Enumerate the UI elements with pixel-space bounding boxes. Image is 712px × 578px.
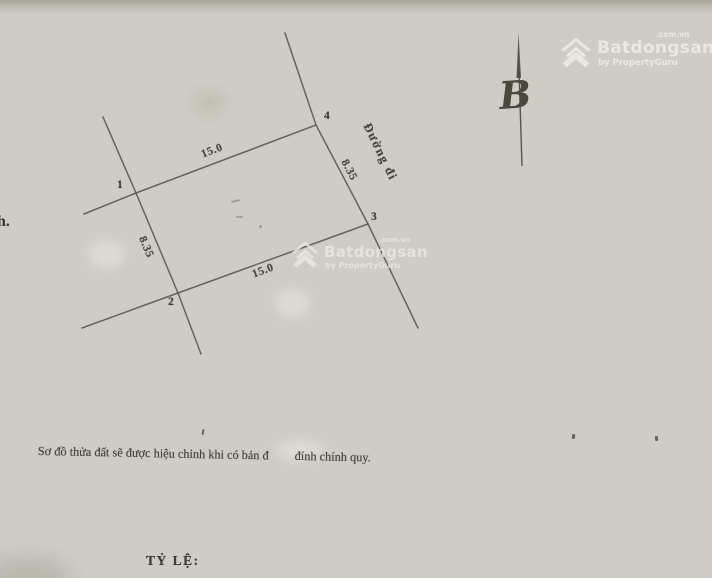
compass-north-letter: B <box>498 75 533 115</box>
footer-note-after: đính chính quy. <box>295 449 371 464</box>
corner-label-2: 2 <box>168 296 174 308</box>
watermark-brand: Batdongsan <box>324 245 428 260</box>
west-boundary-line <box>103 117 201 354</box>
watermark-byline: by PropertyGuru <box>598 59 678 68</box>
batdongsan-logo-icon <box>558 35 594 71</box>
watermark-top-right: .com.vn Batdongsan by PropertyGuru <box>556 28 706 76</box>
corner-label-4: 4 <box>324 110 330 122</box>
batdongsan-logo-icon <box>289 239 321 271</box>
plot-linework <box>0 0 712 578</box>
scanned-land-plot-photo: 1 2 3 4 15.0 15.0 8.35 8.35 Đường đi B h… <box>0 0 712 578</box>
margin-note: h. <box>0 213 10 231</box>
north-edge-line <box>84 125 316 214</box>
corner-label-3: 3 <box>371 211 377 223</box>
watermark-byline: by PropertyGuru <box>325 262 400 270</box>
corner-label-1: 1 <box>117 179 123 191</box>
scale-label: TỶ LỆ: <box>146 553 200 569</box>
watermark-brand: Batdongsan <box>597 40 712 57</box>
watermark-center: .com.vn Batdongsan by PropertyGuru <box>287 231 427 277</box>
